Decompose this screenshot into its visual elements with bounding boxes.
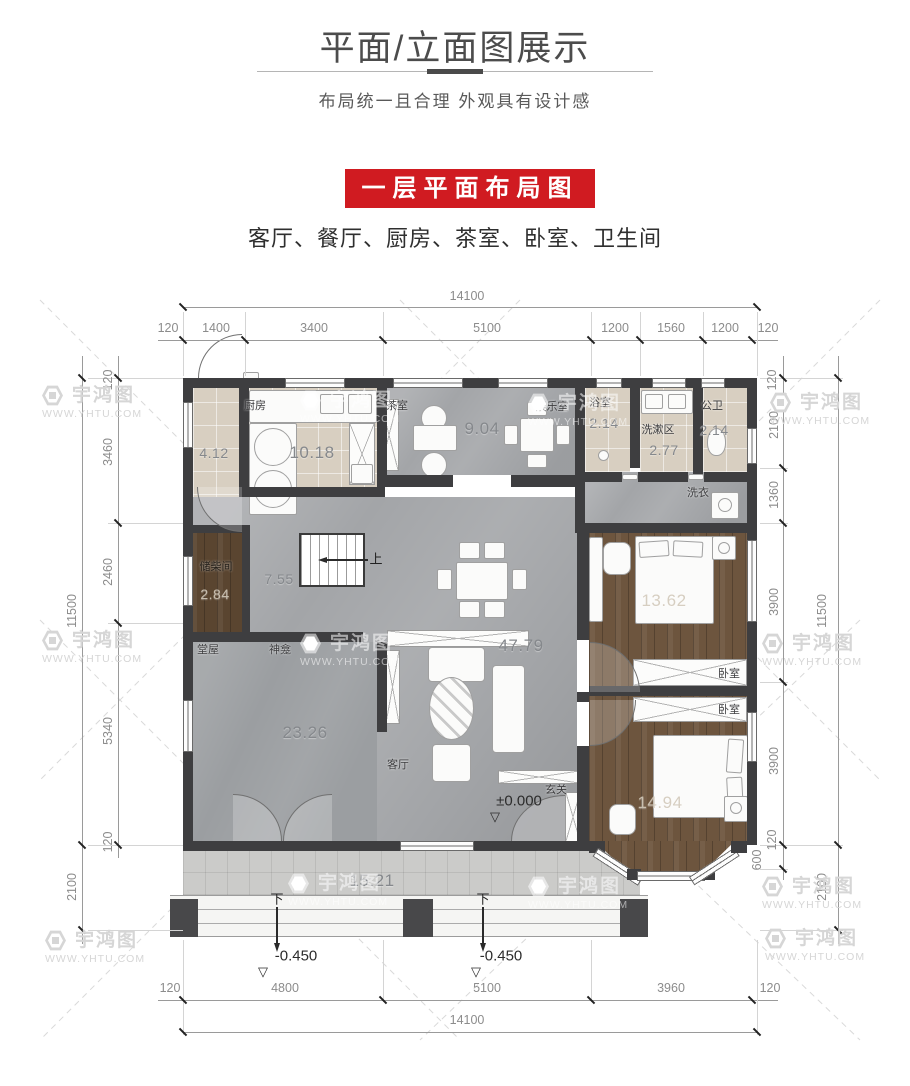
dining-chair-1	[459, 542, 480, 559]
dim-line-left-inner	[118, 356, 119, 858]
washing-machine-drum	[718, 498, 732, 512]
dim-left-2: 2460	[101, 558, 115, 586]
watermark-url: WWW.YHTU.COM	[762, 657, 862, 668]
watermark: 宇鸿图 WWW.YHTU.COM	[762, 633, 862, 668]
door-bath-slide	[622, 474, 638, 480]
watermark-url: WWW.YHTU.COM	[762, 900, 862, 911]
living-area-label: 47.79	[498, 636, 543, 656]
down-arrow-line-right	[482, 907, 484, 943]
game-cushion-right	[556, 425, 570, 445]
watermark-url: WWW.YHTU.COM	[528, 417, 628, 428]
game-cushion-bottom	[527, 454, 547, 468]
porch-level-triangle-right-icon: ▽	[471, 964, 481, 980]
tea-room-area-label: 9.04	[464, 419, 499, 439]
stove-burner-1	[254, 428, 292, 466]
laundry-label: 洗衣	[687, 484, 709, 500]
dim-bottom-1: 4800	[271, 981, 299, 995]
watermark-brand: 宇鸿图	[792, 634, 862, 653]
yhtu-logo-icon	[300, 633, 321, 654]
living-label: 客厅	[387, 756, 409, 772]
dim-top-5: 1560	[657, 321, 685, 335]
wall-bedrooms-left-1	[577, 523, 589, 640]
shrine-label: 神龛	[269, 641, 291, 657]
wash-area-label-name: 洗漱区	[642, 421, 675, 437]
wc-area-label: 2.14	[699, 422, 728, 438]
dim-top-4: 1200	[601, 321, 629, 335]
wash-sink-1	[645, 394, 663, 409]
watermark: 宇鸿图 WWW.YHTU.COM	[770, 392, 870, 427]
dim-bottom-total: 14100	[450, 1013, 485, 1027]
window-kitchen	[285, 378, 345, 388]
bedroom2-area-label: 14.94	[637, 793, 682, 813]
yhtu-logo-icon	[528, 393, 549, 414]
kitchen-label: 厨房	[244, 397, 266, 413]
yhtu-logo-icon	[770, 392, 791, 413]
dim-bottom-2: 5100	[473, 981, 501, 995]
dining-chair-4	[484, 601, 505, 618]
window-main-hall	[183, 700, 193, 752]
dim-line-top-seg	[158, 340, 778, 341]
yhtu-logo-icon	[42, 385, 63, 406]
dim-right-3: 3900	[767, 588, 781, 616]
watermark-url: WWW.YHTU.COM	[770, 416, 870, 427]
watermark: 宇鸿图 WWW.YHTU.COM	[300, 633, 400, 668]
window-tea-2	[498, 378, 548, 388]
wall-bedrooms-left-2	[577, 692, 589, 702]
stair-up-label: 上	[369, 549, 382, 568]
dim-line-bottom-seg	[158, 1000, 778, 1001]
dim-top-3: 5100	[473, 321, 501, 335]
bedroom1-desk	[589, 537, 603, 622]
ext-line	[383, 312, 384, 376]
bedroom2-bench	[609, 804, 636, 835]
watermark-url: WWW.YHTU.COM	[42, 654, 142, 665]
window-living-bottom	[400, 841, 474, 851]
dining-chair-5	[437, 569, 452, 590]
armchair	[432, 744, 471, 782]
dim-top-6: 1200	[711, 321, 739, 335]
bay-post-right	[731, 841, 747, 853]
window-bedroom1	[747, 540, 757, 622]
door-wc-slide	[688, 474, 704, 480]
sofa-top	[428, 647, 485, 682]
ext-line	[591, 312, 592, 376]
ext-line	[757, 940, 758, 1035]
watermark-brand: 宇鸿图	[795, 929, 865, 948]
yhtu-logo-icon	[765, 928, 786, 949]
step-post-left	[170, 899, 198, 937]
watermark-brand: 宇鸿图	[75, 931, 145, 950]
window-storage	[183, 556, 193, 606]
watermark-url: WWW.YHTU.COM	[300, 414, 400, 425]
ext-line	[245, 312, 246, 376]
watermark-brand: 宇鸿图	[330, 634, 400, 653]
watermark-brand: 宇鸿图	[558, 877, 628, 896]
window-bath	[596, 378, 622, 388]
wall-bottom	[183, 841, 595, 851]
shower-drain	[598, 450, 609, 461]
sofa-right	[492, 665, 525, 753]
watermark-url: WWW.YHTU.COM	[42, 409, 142, 420]
yhtu-logo-icon	[528, 876, 549, 897]
game-cushion-left	[504, 425, 518, 445]
dim-line-bottom-total	[183, 1032, 757, 1033]
window-tea-1	[393, 378, 463, 388]
dim-right-4: 3900	[767, 747, 781, 775]
watermark-brand: 宇鸿图	[72, 631, 142, 650]
dim-top-1: 1400	[202, 321, 230, 335]
bedroom1-label: 卧室	[718, 665, 740, 681]
foyer-level-label: ±0.000	[496, 793, 542, 810]
kitchen-small-cabinet	[351, 464, 373, 484]
ext-line	[383, 940, 384, 1002]
yhtu-logo-icon	[45, 930, 66, 951]
main-hall-area-label: 23.26	[282, 723, 327, 743]
wall-bedroom-top	[575, 523, 757, 533]
down-label-left: 下	[270, 889, 283, 908]
yhtu-logo-icon	[288, 873, 309, 894]
dim-bottom-0: 120	[160, 981, 181, 995]
stair-arrow-head	[318, 557, 327, 563]
bedroom1-pillow-1	[638, 540, 669, 558]
watermark-brand: 宇鸿图	[72, 386, 142, 405]
wall-left	[183, 378, 193, 851]
watermark-brand: 宇鸿图	[800, 393, 870, 412]
yhtu-logo-icon	[762, 633, 783, 654]
dim-top-0: 120	[158, 321, 179, 335]
watermark: 宇鸿图 WWW.YHTU.COM	[42, 385, 142, 420]
bedroom1-nightstand-lamp	[718, 542, 730, 554]
ext-line	[640, 312, 641, 376]
wall-bath-bottom-2	[638, 472, 688, 482]
shoe-cabinet	[498, 770, 580, 784]
watermark-brand: 宇鸿图	[318, 874, 388, 893]
dim-top-7: 120	[758, 321, 779, 335]
wash-sink-2	[668, 394, 686, 409]
yhtu-logo-icon	[762, 876, 783, 897]
watermark: 宇鸿图 WWW.YHTU.COM	[45, 930, 145, 965]
dim-left-outer-main: 11500	[65, 594, 79, 628]
window-right-top	[747, 428, 757, 464]
watermark-brand: 宇鸿图	[558, 394, 628, 413]
yhtu-logo-icon	[42, 630, 63, 651]
dim-bottom-3: 3960	[657, 981, 685, 995]
window-pantry	[183, 402, 193, 448]
foyer-label: 玄关	[545, 781, 567, 797]
kitchen-area-label: 10.18	[289, 443, 334, 463]
wash-area-label: 2.77	[649, 442, 678, 458]
living-rug	[429, 677, 474, 740]
window-bedroom2	[747, 712, 757, 762]
dining-table	[456, 562, 508, 600]
watermark-url: WWW.YHTU.COM	[528, 900, 628, 911]
dim-left-1: 3460	[101, 438, 115, 466]
dim-top-total: 14100	[450, 289, 485, 303]
dim-right-6: 600	[750, 850, 764, 871]
window-wc	[701, 378, 725, 388]
dim-top-2: 3400	[300, 321, 328, 335]
watermark-url: WWW.YHTU.COM	[765, 952, 865, 963]
foyer-level-triangle-icon: ▽	[490, 809, 500, 825]
dining-chair-2	[484, 542, 505, 559]
wall-bedrooms-left-3	[577, 746, 589, 851]
watermark-url: WWW.YHTU.COM	[288, 897, 388, 908]
bedroom2-corner-lamp	[730, 802, 742, 814]
hall-area-label: 7.55	[264, 571, 293, 587]
wall-tea-bottom-right	[511, 475, 585, 487]
dim-left-outer-porch: 2100	[65, 873, 79, 901]
wall-storage-right	[242, 525, 250, 640]
dining-chair-6	[512, 569, 527, 590]
stair-arrow-line	[324, 559, 368, 561]
watermark-brand: 宇鸿图	[792, 877, 862, 896]
wood-storage-floor	[191, 533, 242, 632]
porch-level-right: -0.450	[480, 948, 523, 965]
tea-table	[413, 425, 457, 451]
watermark-url: WWW.YHTU.COM	[45, 954, 145, 965]
bedroom2-label: 卧室	[718, 701, 740, 717]
dim-line-right-inner	[783, 356, 784, 880]
pantry-area-label: 4.12	[199, 445, 228, 461]
dining-chair-3	[459, 601, 480, 618]
bedroom2-pillow-1	[726, 738, 744, 773]
dim-right-outer-main: 11500	[815, 594, 829, 628]
bedroom1-bench	[603, 542, 631, 575]
wall-bath-bottom-1	[585, 472, 622, 482]
step-post-center	[403, 899, 433, 937]
page: { "header": { "title": "平面/立面图展示", "subt…	[0, 0, 910, 1086]
watermark-brand: 宇鸿图	[330, 391, 400, 410]
watermark: 宇鸿图 WWW.YHTU.COM	[762, 876, 862, 911]
storage-area-label: 2.84	[200, 586, 229, 602]
wall-kitchen-bottom	[239, 487, 385, 497]
ext-line	[703, 312, 704, 376]
dim-line-top-total	[183, 307, 757, 308]
ext-line	[183, 312, 184, 376]
dim-left-3: 5340	[101, 717, 115, 745]
dim-right-5: 120	[765, 830, 779, 851]
watermark: 宇鸿图 WWW.YHTU.COM	[528, 393, 628, 428]
watermark: 宇鸿图 WWW.YHTU.COM	[300, 390, 400, 425]
watermark: 宇鸿图 WWW.YHTU.COM	[765, 928, 865, 963]
watermark-url: WWW.YHTU.COM	[300, 657, 400, 668]
ext-line	[183, 940, 184, 1035]
main-hall-label: 堂屋	[197, 641, 219, 657]
dim-right-2: 1360	[767, 481, 781, 509]
dim-right-0: 120	[765, 370, 779, 391]
wall-bath-bottom-3	[704, 472, 747, 482]
watermark: 宇鸿图 WWW.YHTU.COM	[288, 873, 388, 908]
porch-level-triangle-left-icon: ▽	[258, 964, 268, 980]
wc-label: 公卫	[701, 397, 723, 413]
watermark: 宇鸿图 WWW.YHTU.COM	[528, 876, 628, 911]
window-wash	[652, 378, 686, 388]
porch-level-left: -0.450	[275, 948, 318, 965]
dim-bottom-4: 120	[760, 981, 781, 995]
ext-line	[591, 940, 592, 1002]
storage-label: 储柴间	[200, 558, 233, 574]
down-label-right: 下	[476, 889, 489, 908]
down-arrow-line-left	[276, 907, 278, 943]
bedroom1-area-label: 13.62	[641, 591, 686, 611]
wall-tea-bottom-left	[377, 475, 453, 487]
yhtu-logo-icon	[300, 390, 321, 411]
watermark: 宇鸿图 WWW.YHTU.COM	[42, 630, 142, 665]
bedroom1-pillow-2	[673, 540, 704, 558]
wall-bath-wash	[630, 388, 640, 468]
